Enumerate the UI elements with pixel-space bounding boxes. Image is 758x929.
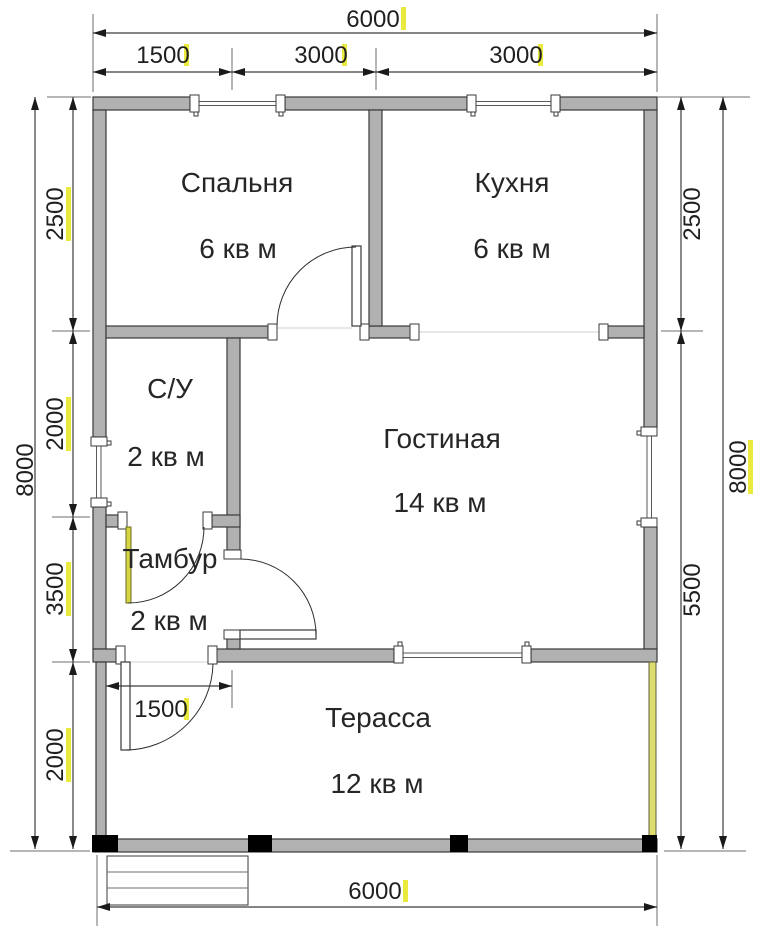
window-cap [91,437,107,446]
wall-vestibule-top-left [106,515,118,527]
room-area-living: 14 кв м [393,487,486,518]
wall-right-lower [644,527,657,649]
window-living-right [637,427,657,527]
room-area-kitchen: 6 кв м [473,233,551,264]
door-jamb [116,646,125,664]
window-nub [554,112,558,116]
window-nub [107,441,111,445]
terrace-wall-left [96,662,106,836]
wall-bathroom-east-stub [227,639,240,649]
wall-bottom-right [531,649,657,662]
door-swing-arc [277,247,356,326]
door-jamb [224,550,241,559]
window-cap [190,95,199,112]
wall-bedroom-bottom [106,326,268,338]
window-cap [551,95,560,112]
room-area-bathroom: 2 кв м [127,441,205,472]
door-swing-arc [240,559,316,635]
room-name-kitchen: Кухня [475,167,550,198]
wall-kitchen-bottom-stub [368,326,412,338]
window-nub [471,112,475,116]
door-jamb [268,324,277,340]
room-name-bedroom: Спальня [181,167,294,198]
door-jamb [208,646,217,664]
wall-left-upper [93,110,106,437]
dim-top-seg3: 3000 [489,42,542,69]
wall-left-lower [93,507,106,649]
dim-right-seg1: 2500 [679,187,706,240]
door-leaf [121,662,130,750]
window-cap [276,95,285,112]
stairs-outline [107,856,248,905]
door-jamb [410,324,419,340]
room-name-terrace: Терасса [325,702,431,733]
window-cap [522,646,531,663]
room-name-vestibule: Тамбур [122,543,217,574]
dim-top-seg1: 1500 [136,42,189,69]
stairs [107,856,248,905]
dim-top-seg2: 3000 [294,42,347,69]
room-area-vestibule: 2 кв м [130,605,208,636]
wall-bottom-left-stub [93,649,117,662]
terrace-edge-right [649,662,656,836]
door-vestibule-living [224,550,316,639]
door-jamb [203,512,212,529]
terrace-post-1 [92,835,118,852]
window-cap [394,646,403,663]
room-area-bedroom: 6 кв м [199,233,277,264]
window-nub [637,521,641,525]
dim-right-seg2: 5500 [679,563,706,616]
door-leaf [240,630,316,639]
dim-bottom-overall: 6000 [348,878,401,905]
window-bathroom-left [91,437,111,507]
window-nub [279,112,283,116]
room-name-bathroom: С/У [147,373,193,404]
window-nub [194,112,198,116]
terrace-post-3 [450,835,468,852]
window-kitchen-top [467,95,560,116]
room-name-living: Гостиная [383,423,501,454]
dim-left-seg1: 2500 [42,187,69,240]
highlight-mark [403,880,408,902]
window-nub [525,642,529,646]
floor-plan-drawing: 6000 1500 3000 3000 8000 2500 2000 3500 … [0,0,758,929]
wall-right-upper [644,110,657,427]
window-nub [107,502,111,506]
door-leaf [352,246,361,326]
terrace-wall-bottom [93,839,657,852]
floor-plan-canvas: 6000 1500 3000 3000 8000 2500 2000 3500 … [0,0,758,929]
dim-left-overall: 8000 [12,443,39,496]
door-jamb [224,630,241,639]
wall-top-left [93,97,190,110]
door-bedroom [268,246,608,340]
window-cap [641,518,657,527]
dim-left-seg4: 2000 [42,728,69,781]
dim-left-seg2: 2000 [42,397,69,450]
door-jamb [118,512,127,529]
wall-vestibule-top-right [212,515,240,527]
dim-top-overall: 6000 [346,6,399,33]
dim-left-seg3: 3500 [42,562,69,615]
window-nub [637,431,641,435]
window-cap [467,95,476,112]
room-area-terrace: 12 кв м [330,768,423,799]
wall-living-east-stub [607,326,644,338]
terrace-structure [92,662,657,852]
window-living-bottom [394,642,531,663]
terrace-post-2 [248,835,272,852]
window-cap [91,498,107,507]
door-jamb [599,324,608,340]
wall-top-right [560,97,657,110]
window-cap [641,427,657,436]
wall-bottom-middle [216,649,394,662]
window-nub [398,642,402,646]
dim-terrace-offset: 1500 [134,696,187,723]
highlight-mark [401,7,406,30]
terrace-post-4 [642,835,657,852]
wall-top-middle [285,97,467,110]
wall-bedroom-kitchen [369,110,382,326]
dim-right-overall: 8000 [725,440,752,493]
window-bedroom-top [190,95,285,116]
